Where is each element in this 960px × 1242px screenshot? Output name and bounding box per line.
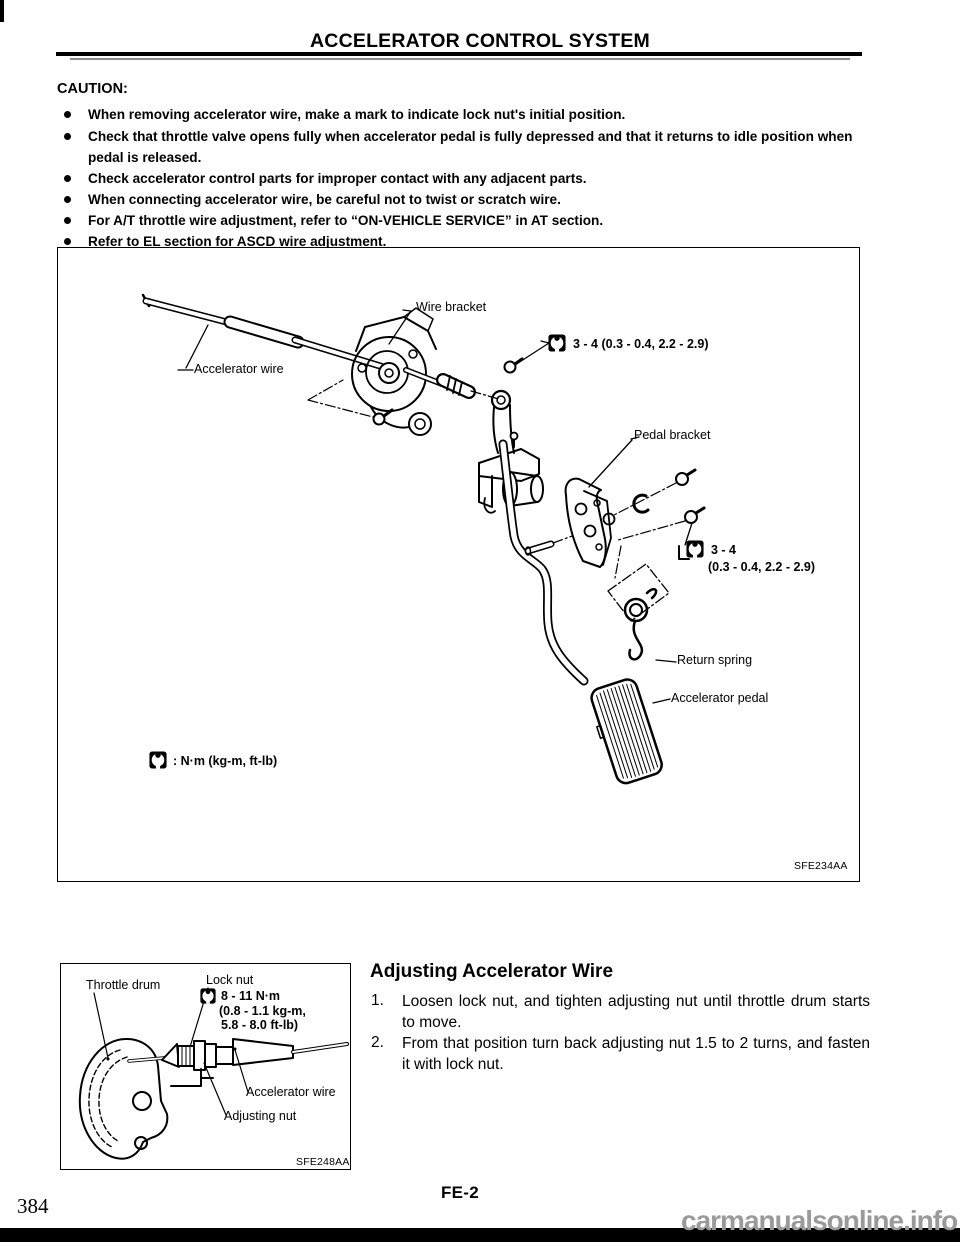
title-underline: [56, 52, 862, 56]
wire-bracket-label: Wire bracket: [416, 300, 486, 314]
torque-spec-line3: 5.8 - 8.0 ft-lb): [221, 1018, 298, 1032]
caution-item: When connecting accelerator wire, be car…: [88, 189, 864, 210]
wire-bracket-drawing: [352, 308, 436, 435]
throttle-drum-label: Throttle drum: [86, 978, 160, 992]
torque-spec-line2: (0.8 - 1.1 kg-m,: [219, 1004, 306, 1018]
step-text: Loosen lock nut, and tighten adjusting n…: [402, 992, 870, 1033]
step-number: 2.: [371, 1034, 397, 1052]
torque-callout-2-line1: 3 - 4: [711, 543, 736, 557]
scan-edge-artifact: [0, 0, 4, 22]
page-title: ACCELERATOR CONTROL SYSTEM: [0, 30, 960, 53]
caution-item: When removing accelerator wire, make a m…: [88, 104, 864, 125]
accelerator-pedal-label: Accelerator pedal: [671, 691, 768, 705]
accelerator-wire-drawing: [143, 295, 390, 369]
accelerator-pedal-drawing: [586, 677, 665, 787]
title-underline-shadow: [70, 58, 850, 60]
torque-wrench-icon: [686, 540, 704, 558]
figure-code: SFE248AA: [296, 1156, 350, 1168]
bullet-icon: [64, 133, 71, 140]
watermark: carmanualsonline.info: [681, 1205, 957, 1237]
lock-nut-label: Lock nut: [206, 973, 253, 987]
figure-code: SFE234AA: [794, 860, 848, 872]
step-text: From that position turn back adjusting n…: [402, 1034, 870, 1075]
bullet-icon: [64, 238, 71, 245]
torque-callout-2-line2: (0.3 - 0.4, 2.2 - 2.9): [708, 560, 815, 574]
torque-legend: : N·m (kg-m, ft-lb): [173, 754, 277, 768]
bullet-icon: [64, 217, 71, 224]
manual-page: ACCELERATOR CONTROL SYSTEM CAUTION: When…: [0, 0, 960, 1242]
step-number: 1.: [371, 992, 397, 1010]
caution-item: Check accelerator control parts for impr…: [88, 168, 864, 189]
torque-wrench-icon: [200, 988, 216, 1004]
page-code: FE-2: [0, 1183, 920, 1203]
bullet-icon: [64, 196, 71, 203]
section-heading: Adjusting Accelerator Wire: [370, 961, 613, 983]
bullet-icon: [64, 175, 71, 182]
wire-end-drawing: [129, 1039, 347, 1086]
torque-callout-1: 3 - 4 (0.3 - 0.4, 2.2 - 2.9): [573, 337, 708, 351]
throttle-drum-drawing: [80, 1039, 168, 1159]
pedal-bracket-label: Pedal bracket: [634, 428, 710, 442]
caution-item: For A/T throttle wire adjustment, refer …: [88, 210, 864, 231]
adjusting-nut-label: Adjusting nut: [224, 1109, 296, 1123]
page-number: 384: [17, 1194, 49, 1219]
accelerator-wire-label: Accelerator wire: [246, 1085, 336, 1099]
torque-wrench-icon: [548, 334, 566, 352]
bullet-icon: [64, 111, 71, 118]
caution-item: Check that throttle valve opens fully wh…: [88, 126, 864, 168]
pedal-bracket-drawing: [566, 479, 615, 567]
torque-spec-line1: 8 - 11 N·m: [221, 989, 280, 1003]
torque-wrench-icon: [149, 751, 167, 769]
caution-heading: CAUTION:: [57, 81, 128, 97]
accelerator-wire-label: Accelerator wire: [194, 362, 284, 376]
return-spring-drawing: [625, 589, 656, 659]
return-spring-label: Return spring: [677, 653, 752, 667]
